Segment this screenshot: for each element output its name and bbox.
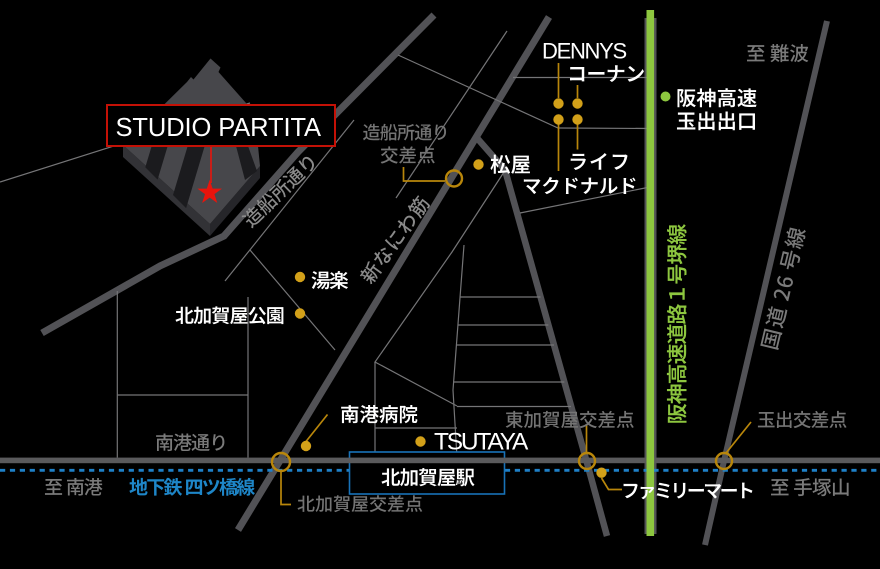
svg-text:DENNYS: DENNYS: [542, 39, 627, 64]
svg-text:STUDIO PARTITA: STUDIO PARTITA: [116, 114, 322, 142]
svg-text:TSUTAYA: TSUTAYA: [434, 429, 529, 456]
